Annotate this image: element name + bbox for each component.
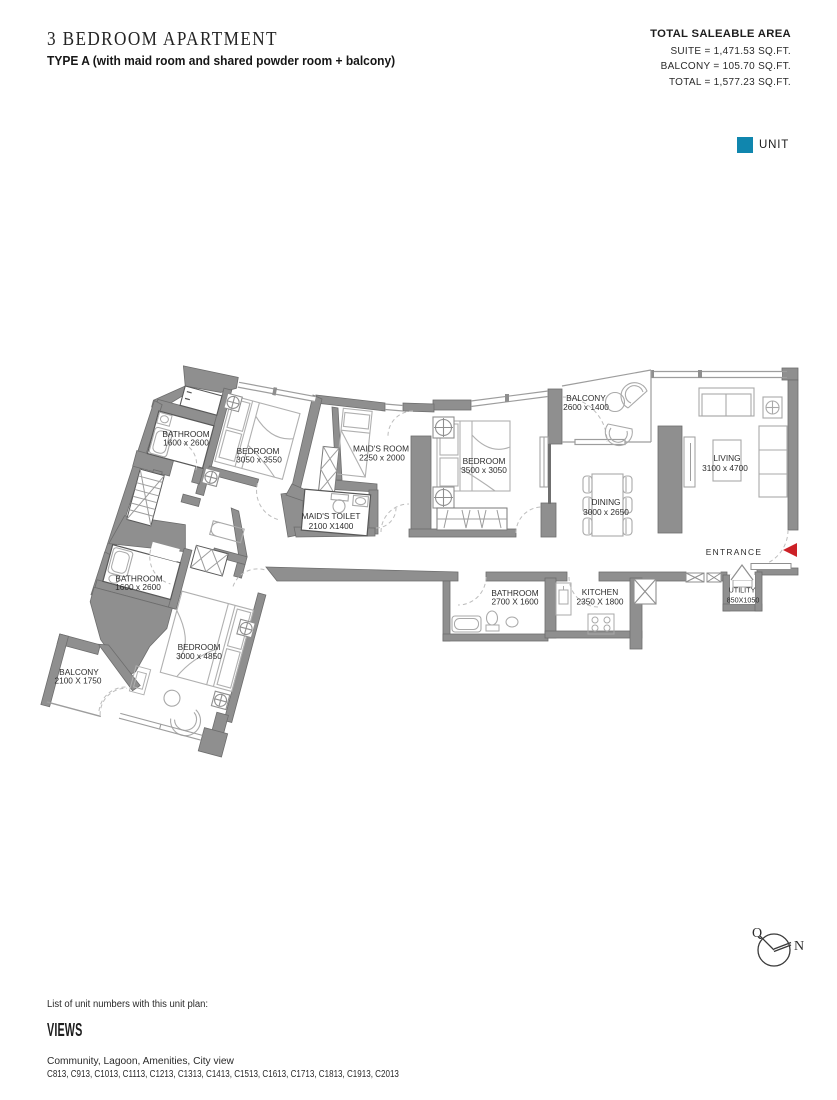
svg-text:N: N <box>794 939 804 954</box>
svg-text:LIVING: LIVING <box>713 453 740 463</box>
svg-text:Q: Q <box>752 926 762 941</box>
svg-text:2350 X 1800: 2350 X 1800 <box>576 597 623 607</box>
svg-text:ENTRANCE: ENTRANCE <box>706 547 762 557</box>
svg-text:1600 x 2600: 1600 x 2600 <box>163 438 209 448</box>
svg-text:DINING: DINING <box>591 497 620 507</box>
svg-text:3000 x 2650: 3000 x 2650 <box>583 507 629 517</box>
svg-text:2100 X1400: 2100 X1400 <box>309 521 354 531</box>
svg-text:3050 x 3550: 3050 x 3550 <box>236 455 282 465</box>
svg-text:2700 X 1600: 2700 X 1600 <box>491 597 538 607</box>
svg-text:3000 x 4850: 3000 x 4850 <box>176 651 222 661</box>
svg-text:MAID'S TOILET: MAID'S TOILET <box>302 511 361 521</box>
svg-text:KITCHEN: KITCHEN <box>582 587 618 597</box>
svg-text:1600 x 2600: 1600 x 2600 <box>115 582 161 592</box>
svg-text:2100 X 1750: 2100 X 1750 <box>54 676 101 686</box>
svg-text:2250 x 2000: 2250 x 2000 <box>359 453 405 463</box>
svg-text:3100 x 4700: 3100 x 4700 <box>702 463 748 473</box>
svg-text:3500 x 3050: 3500 x 3050 <box>461 465 507 475</box>
svg-text:850X1050: 850X1050 <box>727 596 760 605</box>
svg-text:UTILITY: UTILITY <box>729 586 756 595</box>
svg-text:2600 x 1400: 2600 x 1400 <box>563 402 609 412</box>
